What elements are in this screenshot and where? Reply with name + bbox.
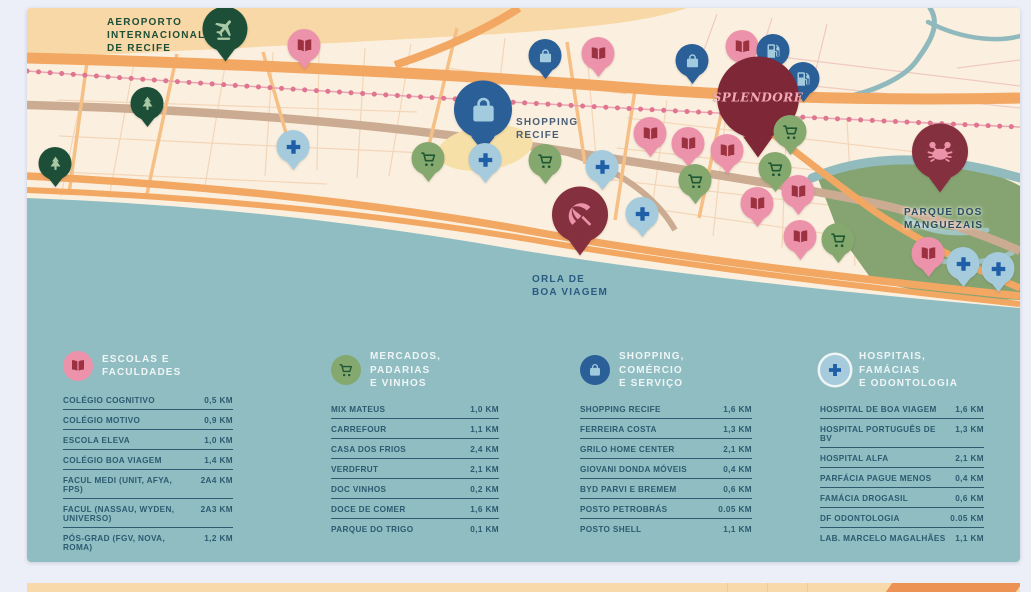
place-distance: 0,4 KM [715,465,752,474]
place-name: COLÉGIO MOTIVO [63,416,140,425]
place-distance: 0,9 KM [196,416,233,425]
place-distance: 2A4 KM [193,476,233,485]
legend-section-3: SHOPPING, COMÉRCIO E SERVIÇOSHOPPING REC… [580,350,752,538]
cart-icon [338,362,354,378]
place-name: GRILO HOME CENTER [580,445,675,454]
place-distance: 1,3 KM [947,425,984,434]
place-distance: 2,1 KM [947,454,984,463]
bag-legend-icon [580,355,610,385]
place-name: HOSPITAL PORTUGUÊS DE BV [820,425,947,443]
book-icon [70,358,86,374]
road-texture [727,583,728,592]
legend-item: CASA DOS FRIOS2,4 KM [331,439,499,459]
place-name: PARFÁCIA PAGUE MENOS [820,474,931,483]
place-distance: 1,6 KM [462,505,499,514]
place-name: CASA DOS FRIOS [331,445,406,454]
legend-item: CARREFOUR1,1 KM [331,419,499,439]
place-name: ESCOLA ELEVA [63,436,130,445]
place-name: HOSPITAL ALFA [820,454,889,463]
place-distance: 1,1 KM [462,425,499,434]
legend-item: FERREIRA COSTA1,3 KM [580,419,752,439]
cross-icon [827,362,843,378]
legend-item: GIOVANI DONDA MÓVEIS0,4 KM [580,459,752,479]
legend-section-header: SHOPPING, COMÉRCIO E SERVIÇO [580,350,752,391]
legend-item: SHOPPING RECIFE1,6 KM [580,399,752,419]
place-name: FAMÁCIA DROGASIL [820,494,908,503]
legend-section-title: MERCADOS, PADARIAS E VINHOS [370,350,499,391]
legend-section-title: HOSPITAIS, FAMÁCIAS E ODONTOLOGIA [859,350,984,391]
legend-item: HOSPITAL ALFA2,1 KM [820,448,984,468]
place-name: HOSPITAL DE BOA VIAGEM [820,405,937,414]
place-distance: 1,2 KM [196,534,233,543]
legend-item: FACUL MEDI (UNIT, AFYA, FPS)2A4 KM [63,470,233,499]
place-distance: 0,6 KM [947,494,984,503]
legend-section-title: ESCOLAS E FACULDADES [102,353,233,380]
legend-section-header: HOSPITAIS, FAMÁCIAS E ODONTOLOGIA [820,350,984,391]
legend-section-title: SHOPPING, COMÉRCIO E SERVIÇO [619,350,752,391]
place-name: MIX MATEUS [331,405,385,414]
legend-item: PARQUE DO TRIGO0,1 KM [331,519,499,538]
legend-item: HOSPITAL PORTUGUÊS DE BV1,3 KM [820,419,984,448]
place-distance: 1,6 KM [947,405,984,414]
place-name: COLÉGIO COGNITIVO [63,396,155,405]
place-name: BYD PARVI E BREMEM [580,485,677,494]
place-name: FERREIRA COSTA [580,425,657,434]
place-distance: 1,1 KM [947,534,984,543]
place-distance: 1,1 KM [715,525,752,534]
legend-item: COLÉGIO BOA VIAGEM1,4 KM [63,450,233,470]
legend-item: BYD PARVI E BREMEM0,6 KM [580,479,752,499]
legend-item: COLÉGIO COGNITIVO0,5 KM [63,390,233,410]
cross-legend-icon [820,355,850,385]
legend: ESCOLAS E FACULDADESCOLÉGIO COGNITIVO0,5… [27,8,1020,562]
legend-item: POSTO PETROBRÁS0.05 KM [580,499,752,519]
place-name: FACUL MEDI (UNIT, AFYA, FPS) [63,476,193,494]
road-fragment [886,583,1020,592]
place-name: DF ODONTOLOGIA [820,514,900,523]
legend-item: DOCE DE COMER1,6 KM [331,499,499,519]
place-distance: 2,1 KM [715,445,752,454]
place-distance: 1,4 KM [196,456,233,465]
place-name: PARQUE DO TRIGO [331,525,413,534]
legend-item: VERDFRUT2,1 KM [331,459,499,479]
legend-item: PÓS-GRAD (FGV, NOVA, ROMA)1,2 KM [63,528,233,556]
place-distance: 2A3 KM [193,505,233,514]
legend-item: FAMÁCIA DROGASIL0,6 KM [820,488,984,508]
legend-item: COLÉGIO MOTIVO0,9 KM [63,410,233,430]
legend-item: DOC VINHOS0,2 KM [331,479,499,499]
book-legend-icon [63,351,93,381]
legend-item: POSTO SHELL1,1 KM [580,519,752,538]
place-distance: 0.05 KM [710,505,752,514]
place-name: PÓS-GRAD (FGV, NOVA, ROMA) [63,534,196,552]
legend-section-header: ESCOLAS E FACULDADES [63,350,233,382]
location-map: AEROPORTO INTERNACIONAL DE RECIFE SHOPPI… [27,8,1020,562]
cart-legend-icon [331,355,361,385]
legend-item: LAB. MARCELO MAGALHÃES1,1 KM [820,528,984,547]
legend-section-4: HOSPITAIS, FAMÁCIAS E ODONTOLOGIAHOSPITA… [820,350,984,547]
legend-item: MIX MATEUS1,0 KM [331,399,499,419]
place-name: POSTO PETROBRÁS [580,505,667,514]
place-distance: 0,6 KM [715,485,752,494]
place-name: SHOPPING RECIFE [580,405,661,414]
place-name: COLÉGIO BOA VIAGEM [63,456,162,465]
place-distance: 2,1 KM [462,465,499,474]
place-name: DOCE DE COMER [331,505,406,514]
place-name: DOC VINHOS [331,485,386,494]
legend-item: GRILO HOME CENTER2,1 KM [580,439,752,459]
legend-section-header: MERCADOS, PADARIAS E VINHOS [331,350,499,391]
place-name: VERDFRUT [331,465,378,474]
place-distance: 1,0 KM [196,436,233,445]
place-distance: 1,0 KM [462,405,499,414]
legend-item: DF ODONTOLOGIA0.05 KM [820,508,984,528]
legend-section-1: ESCOLAS E FACULDADESCOLÉGIO COGNITIVO0,5… [63,350,233,556]
legend-item: ESCOLA ELEVA1,0 KM [63,430,233,450]
place-name: POSTO SHELL [580,525,641,534]
legend-item: PARFÁCIA PAGUE MENOS0,4 KM [820,468,984,488]
place-distance: 2,4 KM [462,445,499,454]
next-section-preview [27,583,1020,592]
place-name: LAB. MARCELO MAGALHÃES [820,534,946,543]
bag-icon [587,362,603,378]
legend-item: FACUL (NASSAU, WYDEN, UNIVERSO)2A3 KM [63,499,233,528]
place-distance: 0.05 KM [942,514,984,523]
place-distance: 0,5 KM [196,396,233,405]
place-distance: 1,6 KM [715,405,752,414]
place-name: CARREFOUR [331,425,386,434]
place-distance: 0,2 KM [462,485,499,494]
place-name: GIOVANI DONDA MÓVEIS [580,465,687,474]
place-distance: 0,4 KM [947,474,984,483]
place-distance: 1,3 KM [715,425,752,434]
legend-item: HOSPITAL DE BOA VIAGEM1,6 KM [820,399,984,419]
place-distance: 0,1 KM [462,525,499,534]
place-name: FACUL (NASSAU, WYDEN, UNIVERSO) [63,505,193,523]
legend-section-2: MERCADOS, PADARIAS E VINHOSMIX MATEUS1,0… [331,350,499,538]
